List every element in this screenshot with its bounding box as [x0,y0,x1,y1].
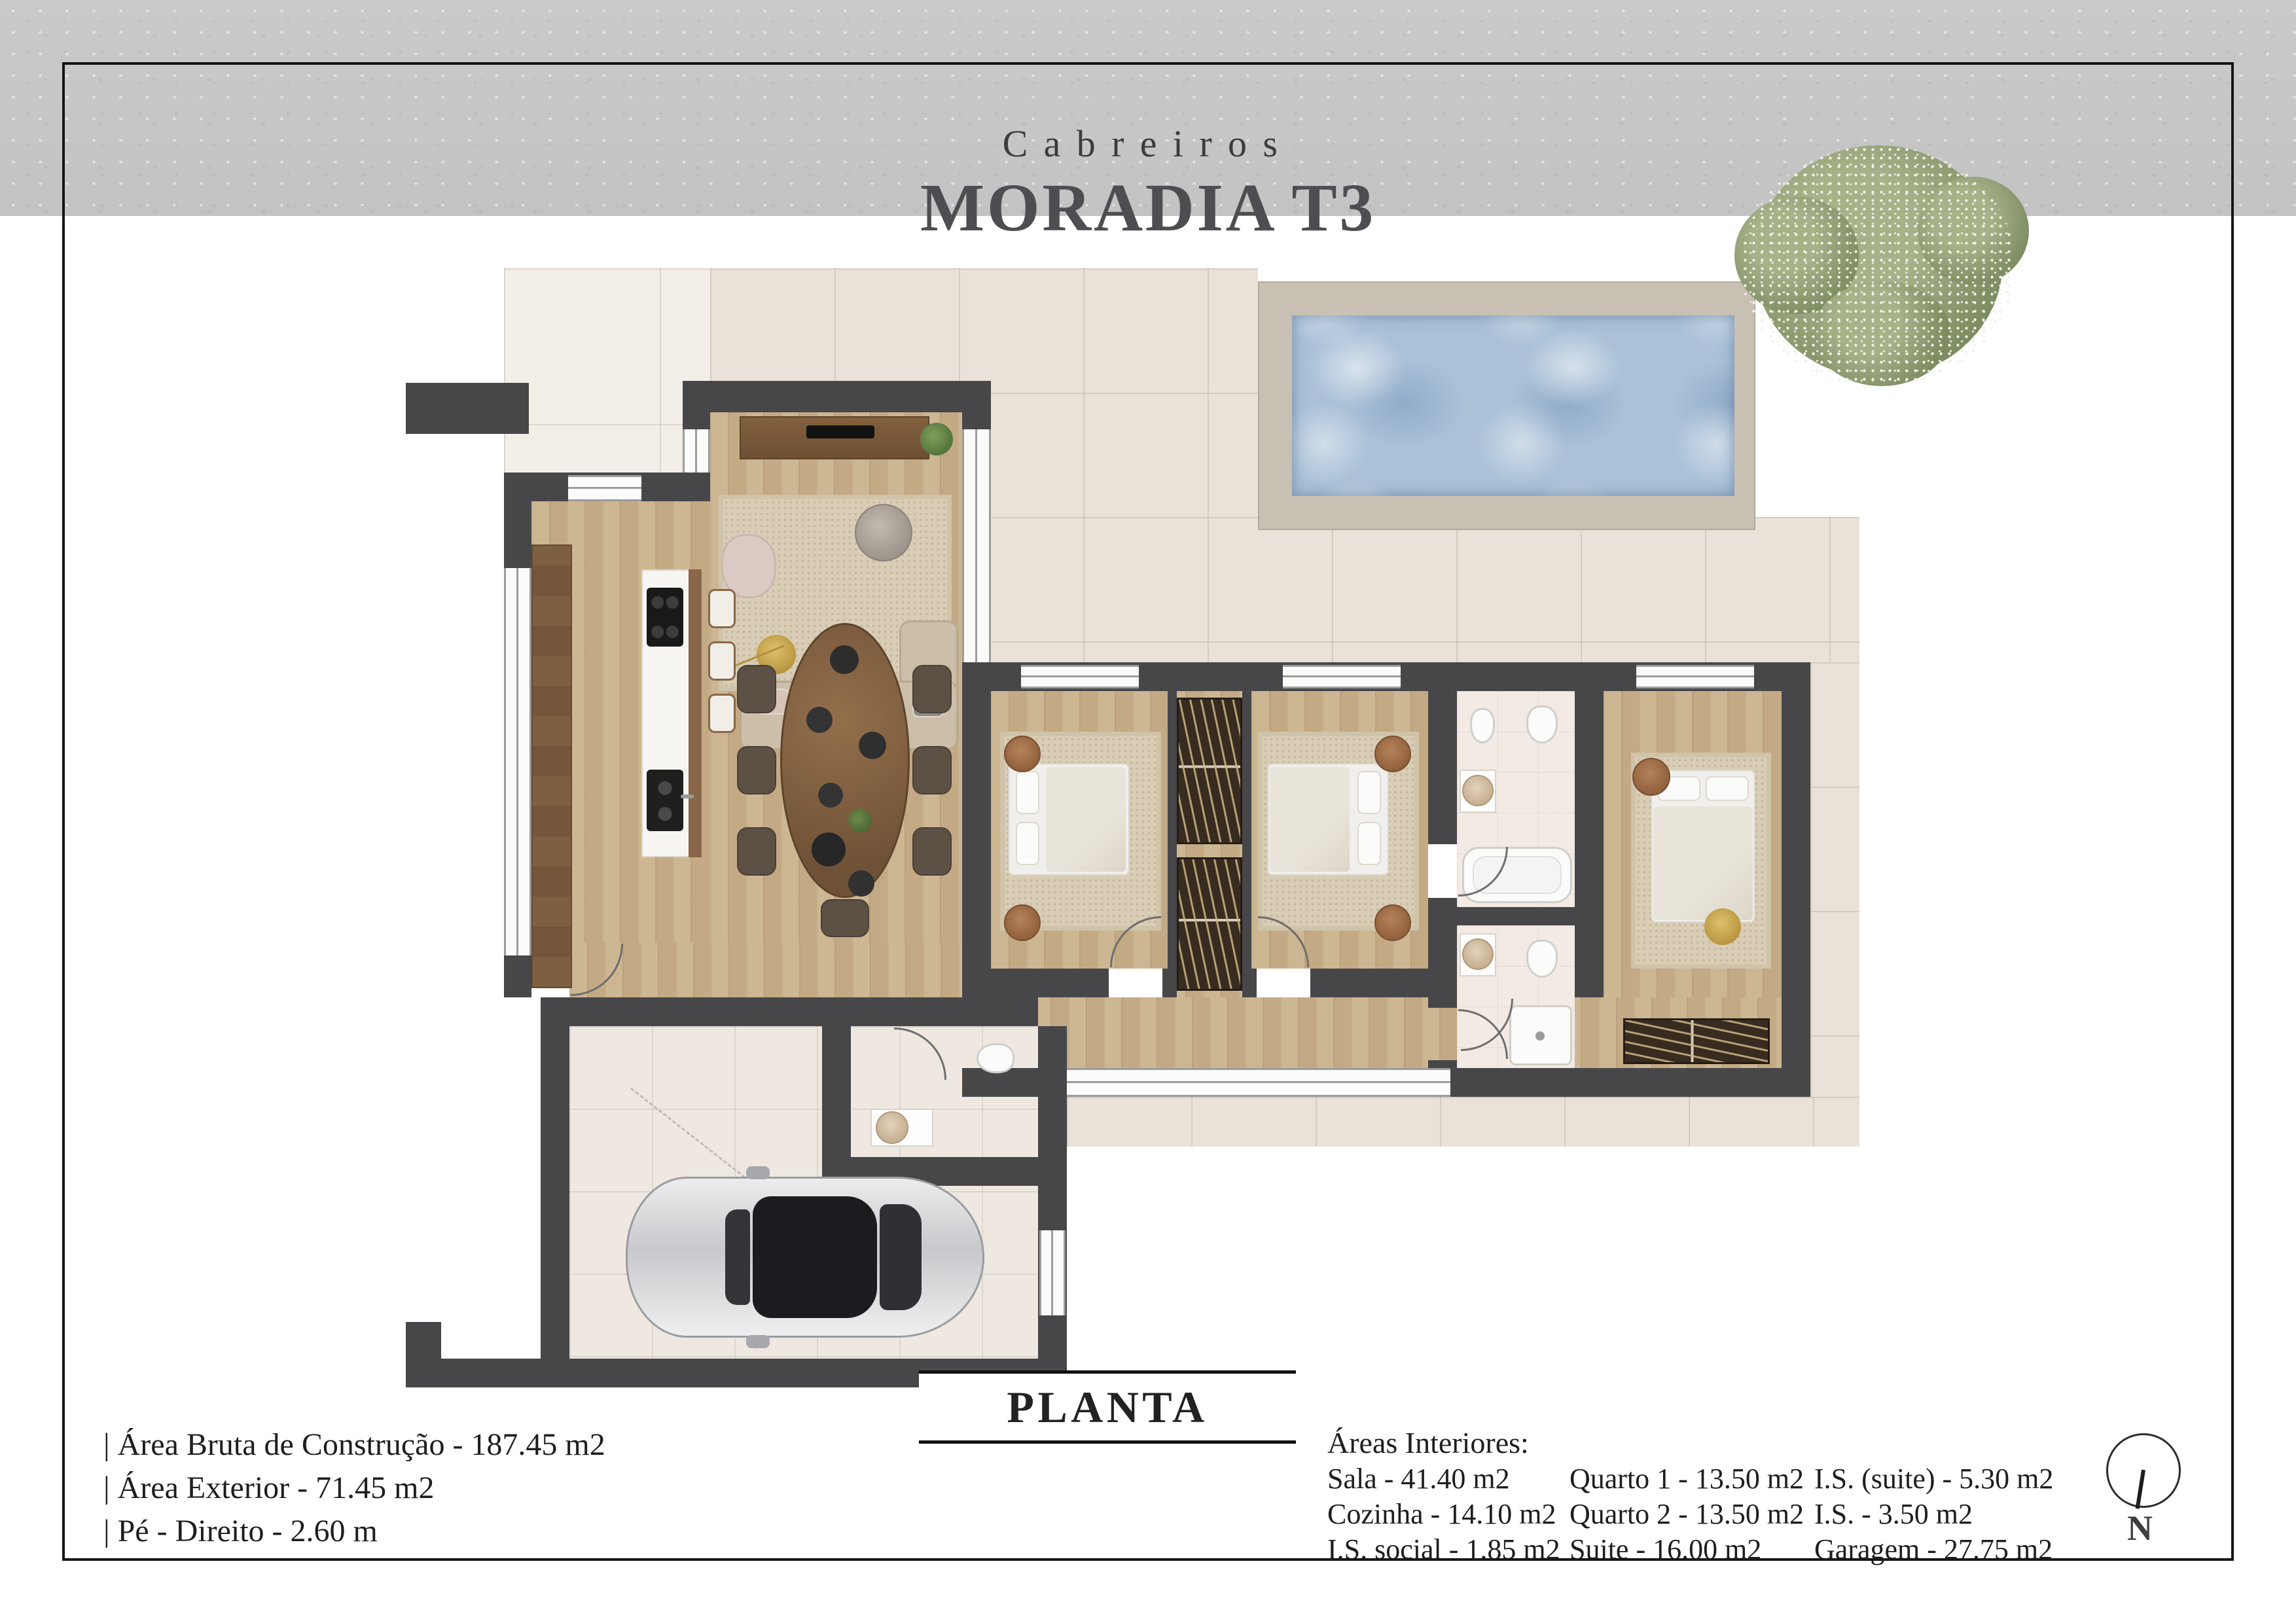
area-item: Suite - 16.00 m2 [1570,1533,1761,1566]
brand-name: Cabreiros [0,122,2296,166]
area-item: Cozinha - 14.10 m2 [1327,1497,1556,1531]
area-item: Quarto 1 - 13.50 m2 [1570,1462,1804,1495]
area-item: Quarto 2 - 13.50 m2 [1570,1497,1804,1531]
summary-line: | Área Exterior - 71.45 m2 [103,1470,434,1506]
summary-line: | Área Bruta de Construção - 187.45 m2 [103,1427,605,1463]
area-item: Sala - 41.40 m2 [1327,1462,1510,1495]
area-item: I.S. (suite) - 5.30 m2 [1814,1462,2053,1495]
area-item: I.S. social - 1.85 m2 [1327,1533,1560,1566]
page-title: MORADIA T3 [0,169,2296,247]
area-item: I.S. - 3.50 m2 [1814,1497,1973,1531]
page-frame [62,62,2234,1561]
areas-heading: Áreas Interiores: [1327,1425,1529,1460]
area-item: Garagem - 27.75 m2 [1814,1533,2053,1566]
plan-label-box: PLANTA [919,1370,1296,1444]
compass-north-label: N [2127,1508,2153,1548]
plan-label: PLANTA [1007,1382,1208,1433]
plan-sheet: Cabreiros MORADIA T3 PLANTA | Área Bruta… [0,0,2296,1623]
summary-line: | Pé - Direito - 2.60 m [103,1513,378,1549]
